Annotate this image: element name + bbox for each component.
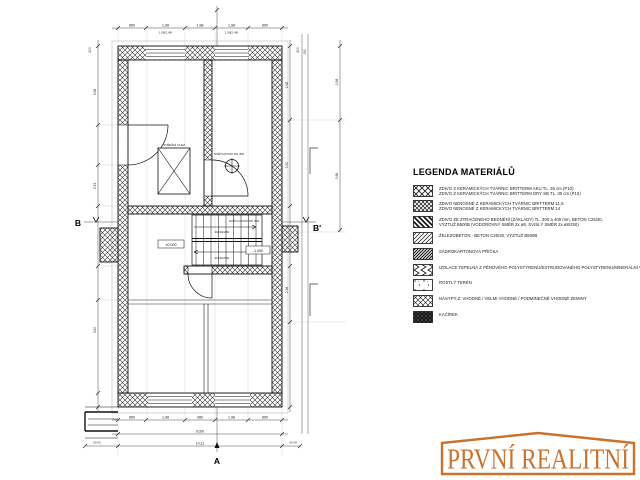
legend-item: KAČÍREK xyxy=(413,311,458,323)
svg-text:850: 850 xyxy=(129,24,135,28)
svg-text:3,98: 3,98 xyxy=(335,173,339,180)
entry-steps xyxy=(85,407,118,438)
legend-item: ZDIVO ZE ZTRACENÉHO BEDNĚNÍ (ZÁKLADY) TL… xyxy=(413,216,603,228)
legend-line: NÁSYPY Z: VHODNÉ / VELMI VHODNÉ / PODMÍN… xyxy=(439,296,587,301)
svg-text:10,11: 10,11 xyxy=(196,442,205,446)
legend-item: SÁDROKARTONOVÁ PŘÍČKA xyxy=(413,248,498,260)
legend-item: NÁSYPY Z: VHODNÉ / VELMI VHODNÉ / PODMÍN… xyxy=(413,295,587,307)
legend-item: ŽELEZOBETON - BETON C25/30, VÝZTUŽ B500B xyxy=(413,232,537,244)
svg-text:1,98(2,48): 1,98(2,48) xyxy=(225,31,239,35)
legend-line: ZDIVO Z KERAMICKÝCH TVÁRNIC BRITTERM DRY… xyxy=(439,191,581,196)
legend-item: ZDIVO NENOSNÉ Z KERAMICKÝCH TVÁRNIC BRIT… xyxy=(413,200,563,212)
section-b-label: B xyxy=(75,218,81,228)
skylight-symbol xyxy=(224,158,240,174)
roof-hatch-shaft xyxy=(158,148,190,194)
svg-text:150: 150 xyxy=(303,49,307,55)
roof-hatch-label: STŘEŠNÍ VLEZ xyxy=(163,142,185,147)
level-zero: ±0,000 xyxy=(166,243,177,247)
legend-item: IZOLACE TEPELNÁ Z PĚNOVÉHO POLYSTYRENU/E… xyxy=(413,264,640,276)
legend-line: ŽELEZOBETON - BETON C25/30, VÝZTUŽ B500B xyxy=(439,233,537,238)
legend-title: LEGENDA MATERIÁLŮ xyxy=(413,167,515,177)
site-lines-right xyxy=(302,34,318,434)
legend-line: SÁDROKARTONOVÁ PŘÍČKA xyxy=(439,249,498,254)
stairs-label: 9x181/250 xyxy=(215,230,230,234)
section-b-prime-label: B' xyxy=(313,223,321,233)
svg-text:2,58: 2,58 xyxy=(285,82,289,89)
swatch-stripes-bold xyxy=(413,216,433,228)
swatch-stripes-dark xyxy=(413,248,433,260)
swatch-crosshatch-dense xyxy=(413,200,433,212)
windows xyxy=(146,47,250,407)
svg-text:300: 300 xyxy=(296,47,300,53)
legend-item: ROSTLÝ TERÉN xyxy=(413,279,472,291)
svg-text:2,98: 2,98 xyxy=(285,287,289,294)
section-a-label: A xyxy=(214,456,220,466)
partitions xyxy=(128,300,272,393)
svg-text:50,42: 50,42 xyxy=(93,441,101,445)
svg-text:2,98: 2,98 xyxy=(335,79,339,86)
svg-text:1,98: 1,98 xyxy=(228,24,235,28)
svg-text:1,98: 1,98 xyxy=(228,416,235,420)
left-annex xyxy=(100,228,118,262)
svg-text:1,98: 1,98 xyxy=(162,24,169,28)
level-minus: -1,050 xyxy=(253,249,263,253)
swatch-crosshatch xyxy=(413,185,433,197)
floorplan-sheet: 9x181/250 9x181/250 SVĚTLOVOD DN 400 STŘ… xyxy=(0,0,640,480)
swatch-stripes-thin xyxy=(413,232,433,244)
svg-text:850: 850 xyxy=(129,416,135,420)
svg-text:850: 850 xyxy=(262,24,268,28)
stairs-label: 9x181/250 xyxy=(215,256,230,260)
svg-text:850: 850 xyxy=(262,416,268,420)
skylight-label: SVĚTLOVOD DN 400 xyxy=(229,218,260,223)
logo-text: PRVNÍ REALITNÍ xyxy=(447,445,629,476)
svg-text:1,98(2,48): 1,98(2,48) xyxy=(159,31,173,35)
swatch-solid-dark xyxy=(413,311,433,323)
walls xyxy=(100,46,298,407)
legend-line: VÝZTUŽ B500B (VODOROVNÝ SMĚR 2x ø8, SVIS… xyxy=(439,222,603,227)
legend-item: ZDIVO Z KERAMICKÝCH TVÁRNIC BRITTERM AKU… xyxy=(413,185,581,197)
swatch-dots xyxy=(413,279,433,291)
svg-text:1,88: 1,88 xyxy=(197,24,204,28)
section-a-arrow-icon xyxy=(215,442,220,448)
realty-logo: PRVNÍ REALITNÍ xyxy=(438,429,638,478)
svg-text:300: 300 xyxy=(88,47,92,53)
svg-text:3,98: 3,98 xyxy=(93,89,97,96)
legend-line: ROSTLÝ TERÉN xyxy=(439,280,472,285)
svg-text:9160: 9160 xyxy=(196,430,204,434)
swatch-insulation xyxy=(413,264,433,276)
legend-line: ZDIVO NENOSNÉ Z KERAMICKÝCH TVÁRNIC BRIT… xyxy=(439,206,563,211)
svg-text:2,53: 2,53 xyxy=(93,183,97,190)
legend-line: KAČÍREK xyxy=(439,312,458,317)
materials-legend: LEGENDA MATERIÁLŮ ZDIVO Z KERAMICKÝCH TV… xyxy=(413,165,639,335)
svg-text:1,98: 1,98 xyxy=(162,416,169,420)
svg-text:3,60: 3,60 xyxy=(93,327,97,334)
skylight-label: SVĚTLOVOD DN 400 xyxy=(214,151,245,156)
svg-text:1,50: 1,50 xyxy=(285,162,289,169)
svg-text:980: 980 xyxy=(197,416,203,420)
legend-line: IZOLACE TEPELNÁ Z PĚNOVÉHO POLYSTYRENU/E… xyxy=(439,265,640,270)
floor-plan-drawing: 9x181/250 9x181/250 SVĚTLOVOD DN 400 STŘ… xyxy=(0,0,410,480)
svg-text:50,48: 50,48 xyxy=(289,441,297,445)
swatch-hatch-dots xyxy=(413,295,433,307)
